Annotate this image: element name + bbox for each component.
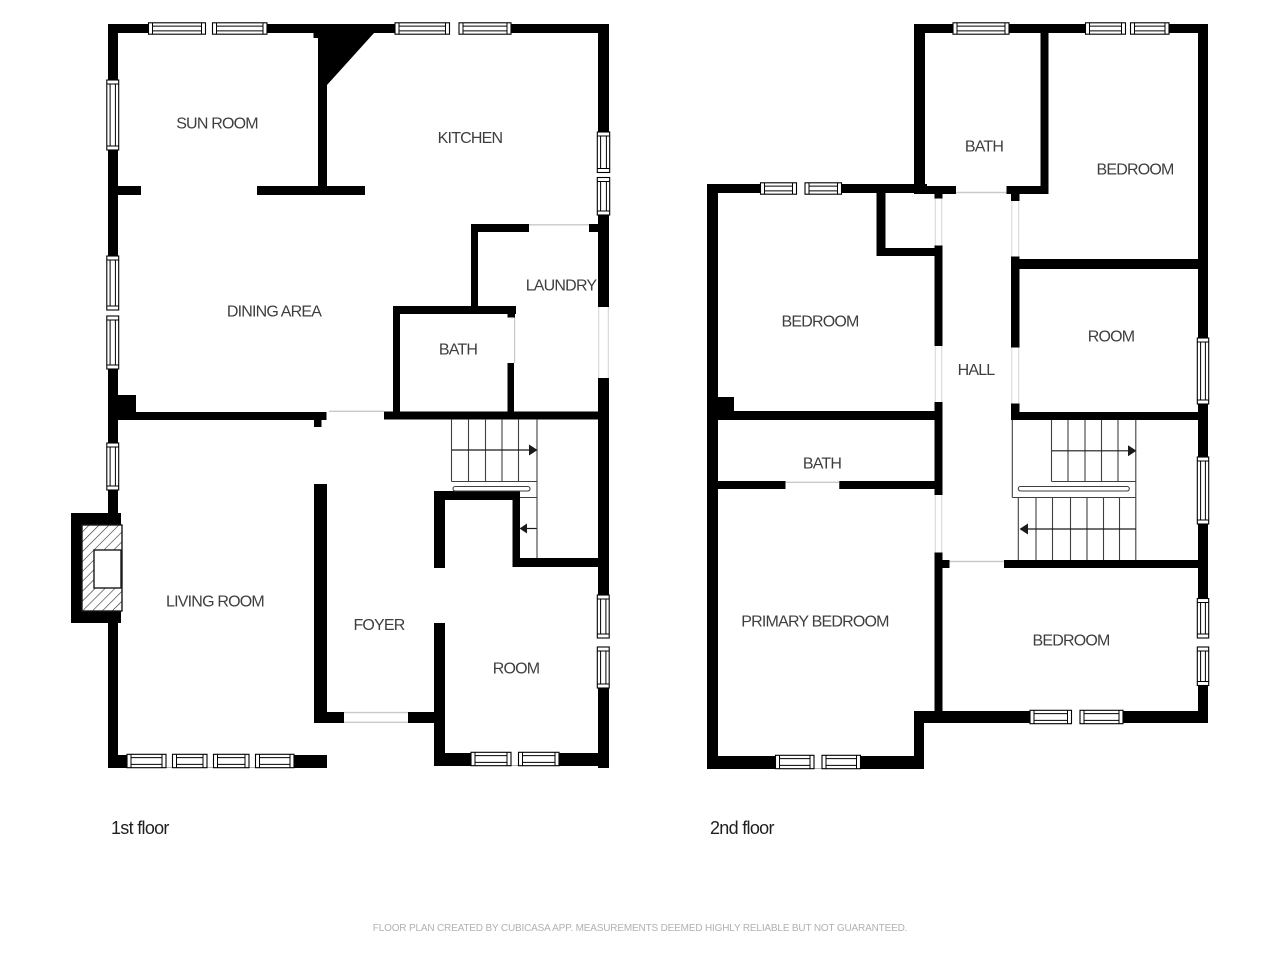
svg-text:BATH: BATH xyxy=(439,342,478,359)
svg-text:FLOOR PLAN CREATED BY CUBICASA: FLOOR PLAN CREATED BY CUBICASA APP. MEAS… xyxy=(373,923,908,934)
svg-text:BATH: BATH xyxy=(803,456,842,473)
svg-text:LIVING ROOM: LIVING ROOM xyxy=(166,594,264,611)
svg-text:BEDROOM: BEDROOM xyxy=(1096,162,1174,179)
svg-text:BEDROOM: BEDROOM xyxy=(781,314,859,331)
svg-text:LAUNDRY: LAUNDRY xyxy=(526,278,598,295)
svg-text:2nd floor: 2nd floor xyxy=(710,818,774,838)
svg-text:BATH: BATH xyxy=(965,139,1004,156)
svg-text:1st floor: 1st floor xyxy=(111,818,169,838)
svg-text:ROOM: ROOM xyxy=(493,661,540,678)
svg-text:FOYER: FOYER xyxy=(353,617,404,634)
svg-text:DINING AREA: DINING AREA xyxy=(227,304,322,321)
svg-text:HALL: HALL xyxy=(958,362,996,379)
svg-text:BEDROOM: BEDROOM xyxy=(1032,633,1110,650)
svg-text:KITCHEN: KITCHEN xyxy=(438,130,503,147)
svg-text:PRIMARY BEDROOM: PRIMARY BEDROOM xyxy=(741,614,889,631)
svg-text:SUN ROOM: SUN ROOM xyxy=(176,116,258,133)
svg-text:ROOM: ROOM xyxy=(1088,329,1135,346)
